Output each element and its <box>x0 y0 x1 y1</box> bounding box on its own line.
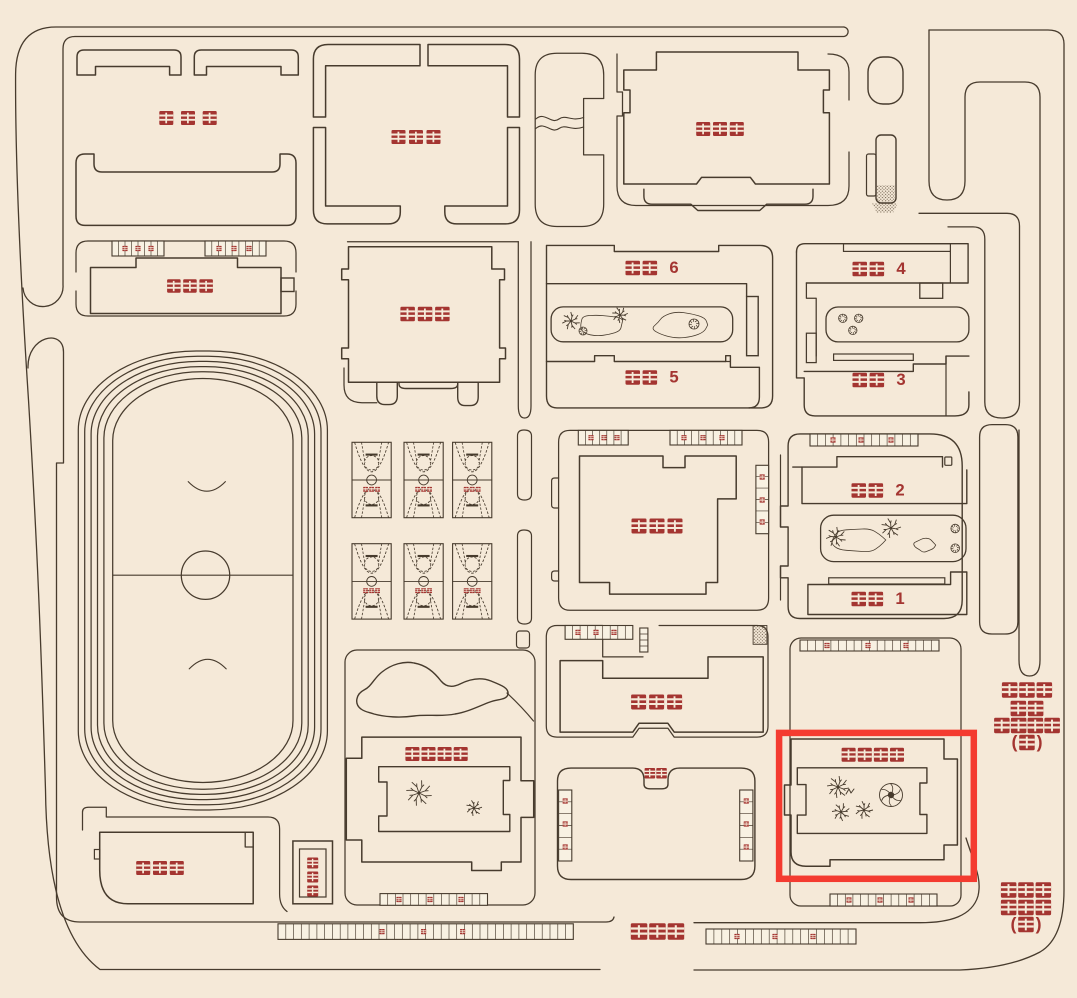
svg-text:4: 4 <box>896 259 906 278</box>
svg-text:3: 3 <box>896 370 905 389</box>
svg-text:): ) <box>1037 732 1043 752</box>
svg-text:): ) <box>1036 914 1042 934</box>
svg-text:6: 6 <box>669 258 678 277</box>
svg-text:1: 1 <box>895 589 904 608</box>
svg-text:5: 5 <box>669 368 678 387</box>
svg-text:(: ( <box>1010 914 1016 934</box>
svg-text:(: ( <box>1011 732 1017 752</box>
svg-text:2: 2 <box>895 481 904 500</box>
